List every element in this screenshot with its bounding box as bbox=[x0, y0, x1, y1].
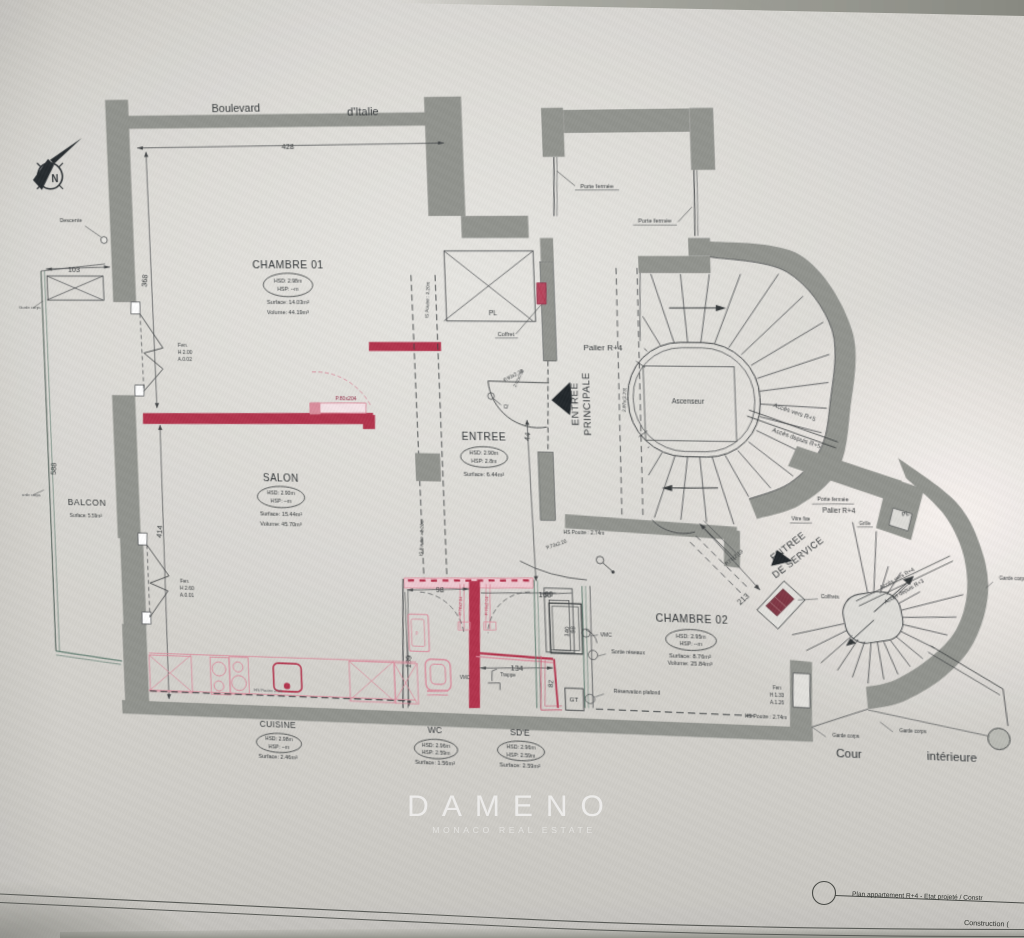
svg-text:MONACO REAL ESTATE: MONACO REAL ESTATE bbox=[432, 825, 596, 835]
svg-text:DAMENO: DAMENO bbox=[407, 790, 617, 823]
svg-text:Construction (: Construction ( bbox=[964, 918, 1010, 929]
svg-text:Plan appartement R+4 - Etat pr: Plan appartement R+4 - Etat projeté / Co… bbox=[852, 891, 984, 902]
